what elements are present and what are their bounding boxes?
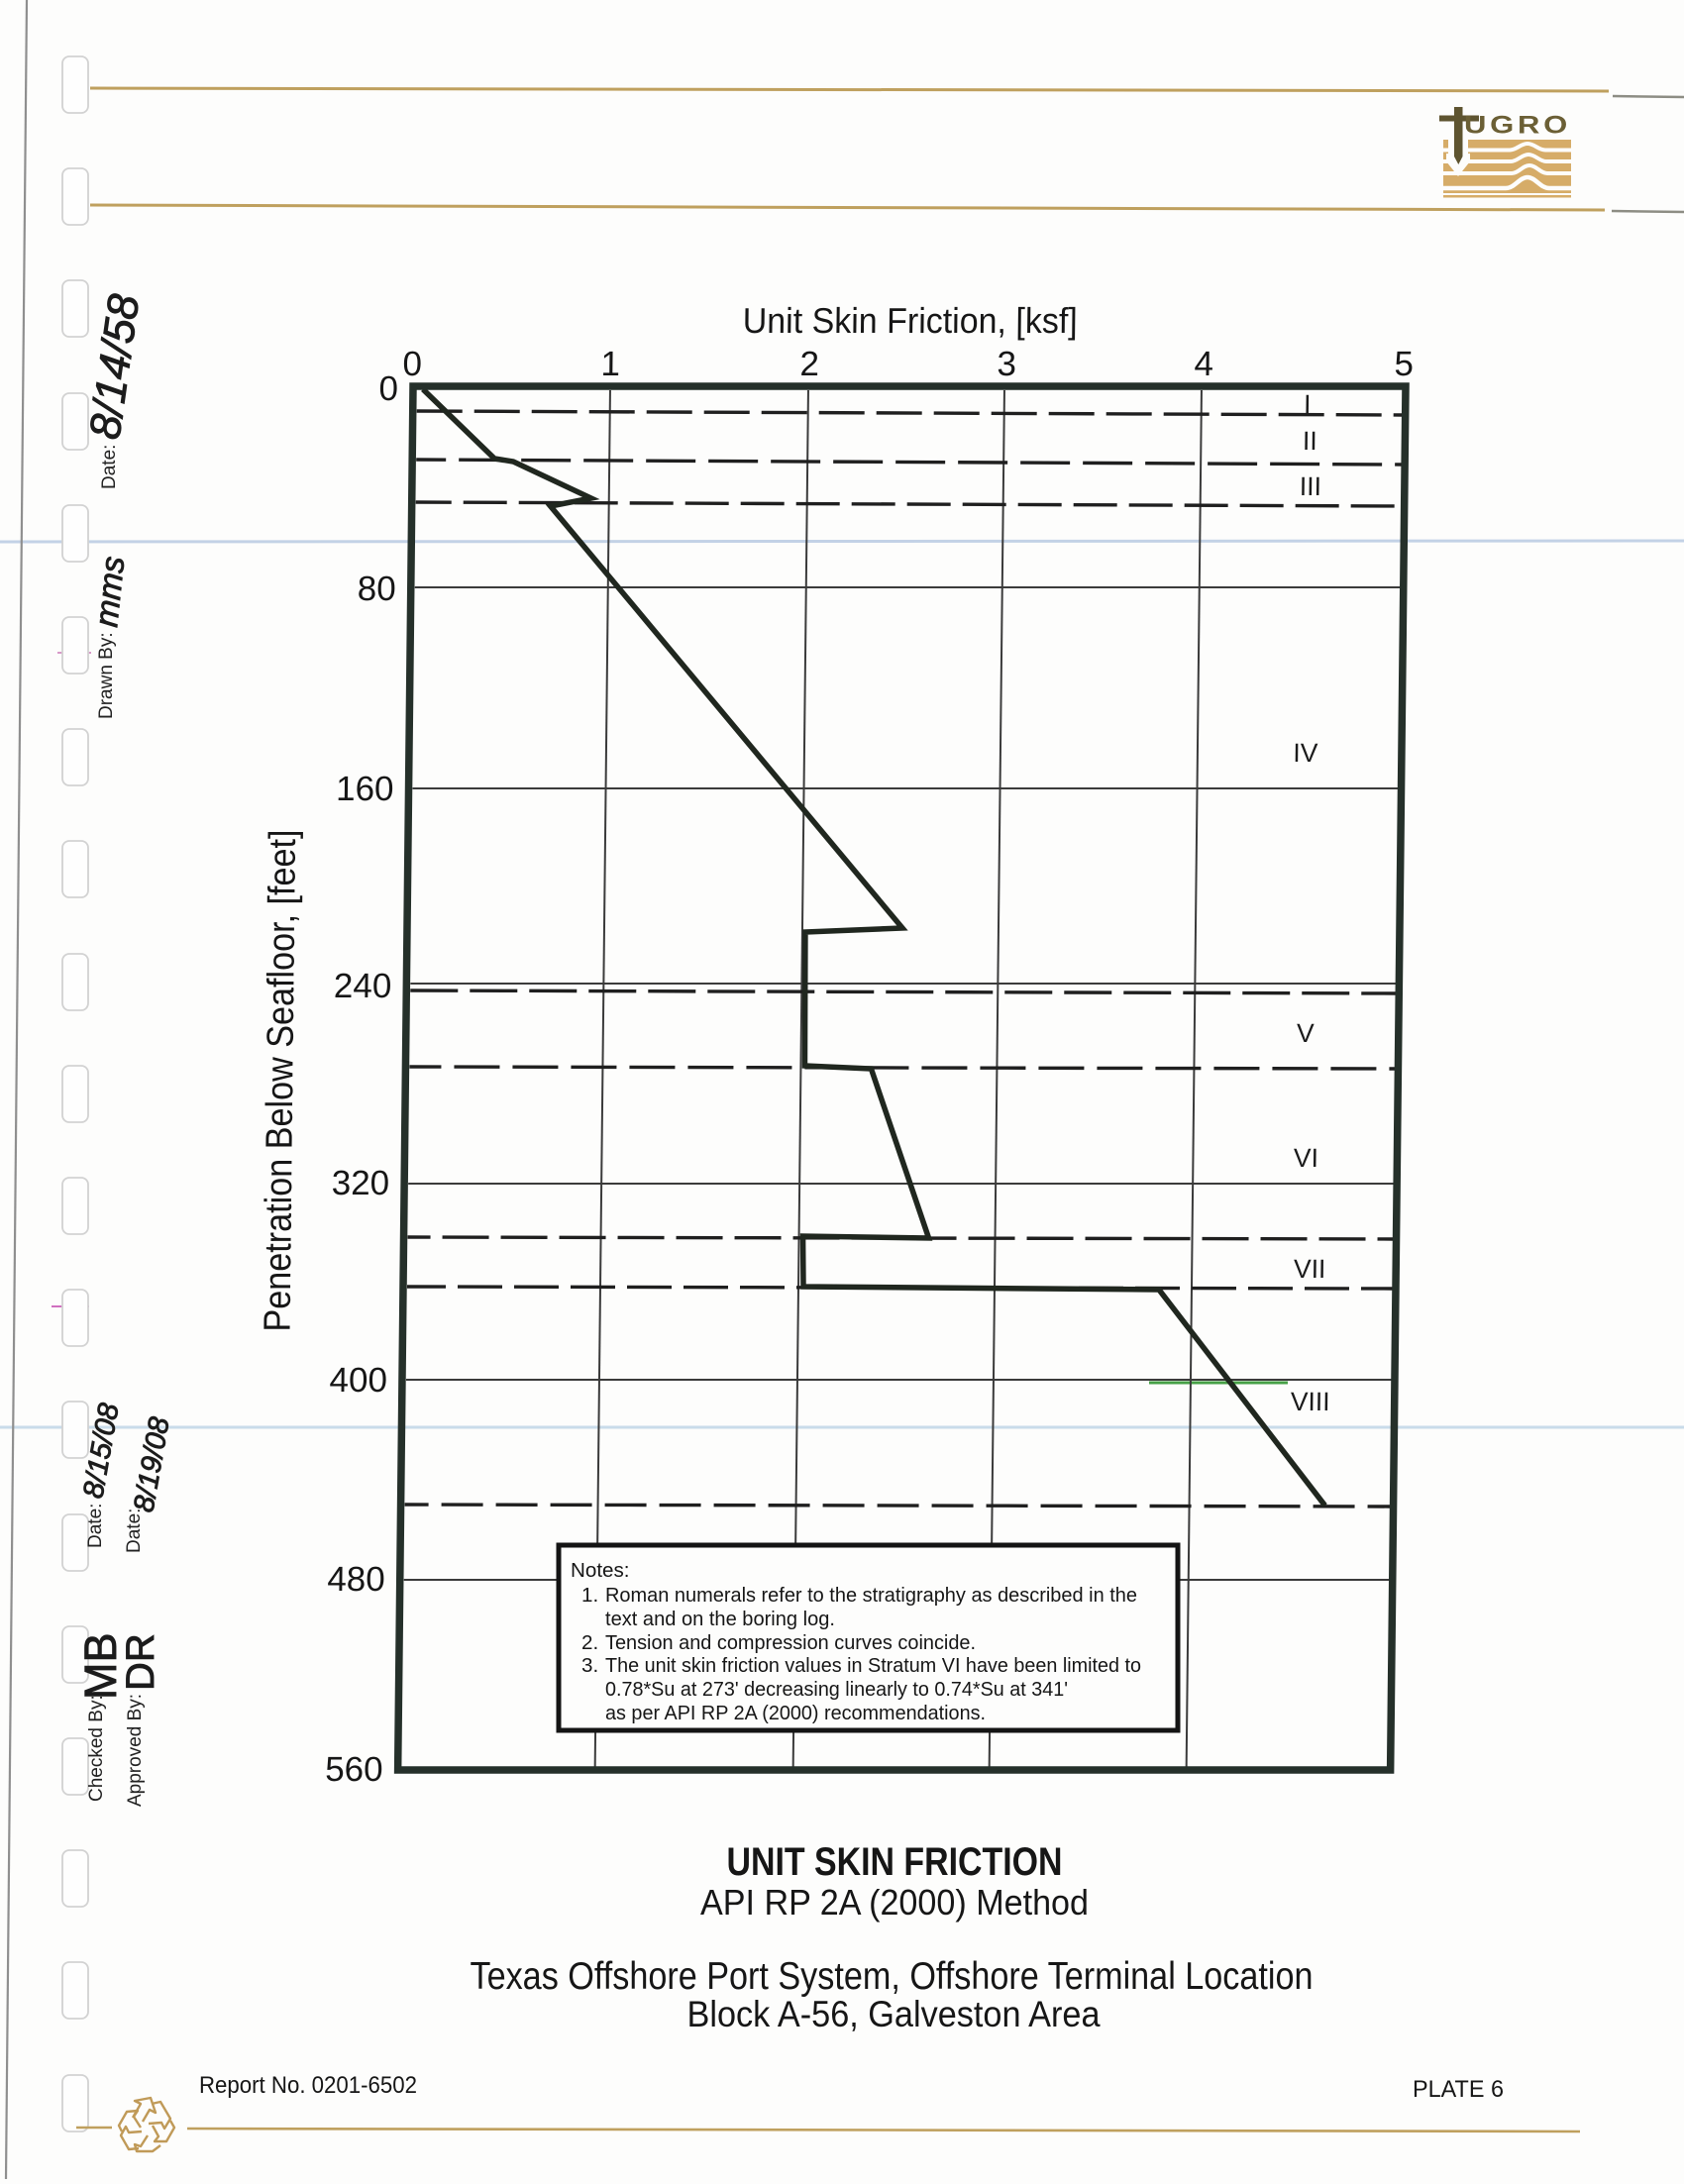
svg-text:The unit skin friction values: The unit skin friction values in Stratum…: [605, 1654, 1141, 1677]
svg-text:Date:: Date:: [99, 445, 120, 489]
svg-text:80: 80: [358, 570, 396, 608]
svg-text:320: 320: [332, 1164, 390, 1202]
svg-text:II: II: [1303, 426, 1317, 456]
svg-text:Unit Skin Friction, [ksf]: Unit Skin Friction, [ksf]: [743, 300, 1078, 341]
svg-text:2: 2: [799, 345, 819, 383]
svg-text:I: I: [1304, 389, 1312, 419]
svg-text:2.: 2.: [581, 1631, 598, 1654]
svg-text:IV: IV: [1293, 738, 1318, 768]
svg-text:240: 240: [334, 967, 392, 1005]
svg-text:560: 560: [325, 1750, 383, 1789]
svg-text:Notes:: Notes:: [571, 1559, 630, 1582]
svg-text:UNIT SKIN FRICTION: UNIT SKIN FRICTION: [727, 1840, 1063, 1884]
svg-text:0: 0: [402, 345, 422, 383]
svg-text:Drawn By:: Drawn By:: [96, 632, 117, 719]
svg-text:1.: 1.: [581, 1584, 598, 1607]
svg-text:VIII: VIII: [1291, 1387, 1330, 1416]
svg-text:480: 480: [327, 1560, 385, 1599]
svg-text:Checked By:: Checked By:: [86, 1695, 107, 1802]
svg-text:3: 3: [997, 345, 1016, 383]
svg-text:III: III: [1300, 471, 1321, 501]
svg-text:1: 1: [600, 345, 620, 383]
svg-text:Approved By:: Approved By:: [125, 1694, 146, 1807]
svg-text:Block A-56, Galveston Area: Block A-56, Galveston Area: [687, 1994, 1101, 2034]
svg-text:400: 400: [329, 1361, 387, 1400]
svg-text:Report No. 0201-6502: Report No. 0201-6502: [199, 2072, 417, 2099]
svg-text:0: 0: [378, 369, 398, 408]
svg-text:V: V: [1297, 1018, 1315, 1048]
svg-text:DR: DR: [119, 1633, 162, 1691]
svg-text:Date:: Date:: [85, 1504, 106, 1548]
svg-text:text and on the boring log.: text and on the boring log.: [605, 1608, 835, 1630]
svg-text:as per API RP 2A (2000) recomm: as per API RP 2A (2000) recommendations.: [605, 1702, 986, 1724]
svg-text:API RP 2A (2000) Method: API RP 2A (2000) Method: [700, 1882, 1089, 1923]
svg-text:VII: VII: [1294, 1254, 1326, 1284]
svg-text:Date:: Date:: [124, 1508, 145, 1553]
svg-text:Texas Offshore Port System, Of: Texas Offshore Port System, Offshore Ter…: [471, 1955, 1314, 1998]
svg-text:mms: mms: [87, 555, 131, 629]
svg-text:UGRO: UGRO: [1464, 112, 1571, 140]
svg-text:3.: 3.: [581, 1654, 598, 1677]
svg-text:VI: VI: [1294, 1143, 1318, 1173]
svg-text:Penetration Below Seafloor, [f: Penetration Below Seafloor, [feet]: [258, 830, 305, 1332]
svg-text:PLATE 6: PLATE 6: [1413, 2076, 1504, 2103]
svg-text:0.78*Su at 273' decreasing lin: 0.78*Su at 273' decreasing linearly to 0…: [605, 1678, 1068, 1701]
svg-text:4: 4: [1194, 345, 1213, 383]
svg-text:5: 5: [1394, 345, 1414, 383]
svg-text:Roman numerals refer to the st: Roman numerals refer to the stratigraphy…: [605, 1584, 1137, 1607]
svg-text:160: 160: [336, 770, 394, 808]
svg-text:Tension and compression curves: Tension and compression curves coincide.: [605, 1631, 976, 1654]
